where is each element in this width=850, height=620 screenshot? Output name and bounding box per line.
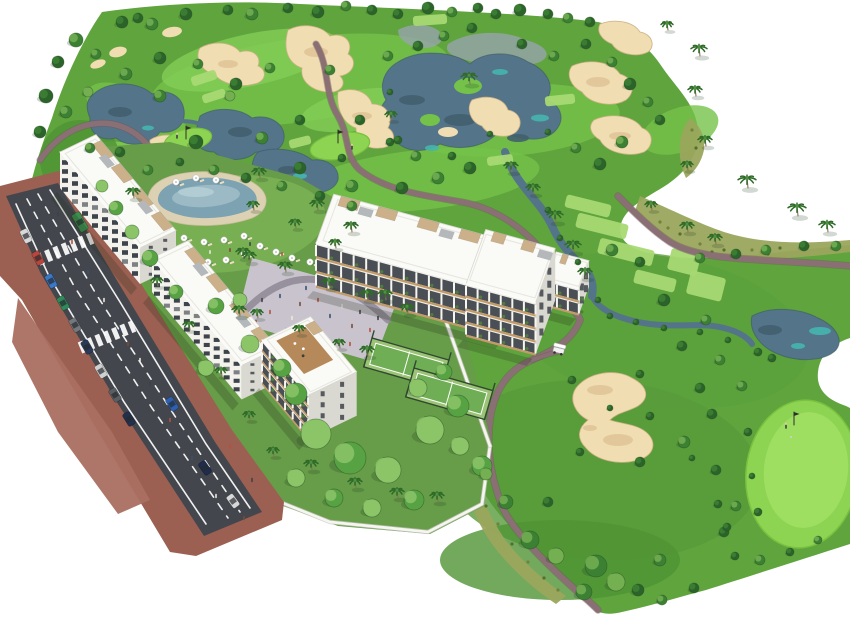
palm-shadow	[702, 146, 715, 150]
tree-highlight	[731, 552, 736, 557]
tree-highlight	[473, 3, 479, 9]
terrace-column	[511, 338, 513, 348]
tree-highlight	[661, 325, 665, 329]
rendering-canvas	[0, 0, 850, 620]
tree-highlight	[678, 436, 685, 443]
palm-crown	[294, 220, 297, 223]
palm-crown	[686, 162, 689, 165]
pool-guest	[209, 250, 211, 254]
palm-crown	[406, 305, 409, 308]
palm-shadow	[742, 187, 758, 193]
terrace-plant	[355, 263, 358, 266]
palm-shadow	[685, 170, 696, 174]
tree-highlight	[347, 201, 353, 207]
terrace-plant	[455, 305, 458, 308]
terrace-column	[534, 318, 536, 328]
tree-highlight	[480, 468, 487, 475]
tree-highlight	[543, 497, 549, 503]
tree-highlight	[39, 90, 48, 99]
terrace-column	[269, 384, 271, 392]
palm-shadow	[434, 502, 447, 506]
tree-highlight	[393, 9, 399, 15]
tree-highlight	[109, 202, 118, 211]
palm-crown	[686, 223, 689, 226]
palm-crown	[366, 347, 369, 350]
tree-highlight	[464, 162, 471, 169]
aerial-render	[0, 0, 850, 620]
tree-highlight	[447, 7, 453, 13]
palm-crown	[238, 307, 241, 310]
palm-crown	[704, 137, 707, 140]
terrace-column	[534, 344, 536, 354]
palm-shadow	[551, 221, 565, 226]
plaza-person	[349, 342, 351, 346]
terrace-column	[378, 262, 380, 273]
palm-crown	[272, 448, 275, 451]
terrace-column	[500, 308, 502, 318]
tree-highlight	[367, 5, 373, 11]
pedestrian	[191, 456, 193, 460]
tree-highlight	[563, 13, 569, 19]
terrace-column	[440, 308, 442, 319]
palm-shadow	[271, 456, 282, 460]
plaza-person	[329, 314, 331, 318]
terrace-column	[353, 270, 355, 281]
palm-crown	[826, 222, 829, 225]
terrace-column	[465, 299, 467, 309]
tree-highlight	[549, 51, 555, 57]
palm-shadow	[684, 232, 697, 236]
umbrella-pole	[183, 237, 185, 239]
window	[132, 262, 138, 267]
window	[82, 202, 88, 207]
bunker-shade	[587, 385, 613, 395]
terrace-column	[328, 248, 330, 259]
tree-highlight	[472, 457, 484, 469]
palm-crown	[252, 202, 255, 205]
tree-highlight	[91, 49, 97, 55]
tree-highlight	[543, 9, 549, 15]
terrace-column	[578, 291, 580, 301]
side-window	[584, 285, 588, 292]
tree-highlight	[409, 380, 420, 391]
bunker-shade	[218, 60, 238, 68]
terrace-column	[523, 315, 525, 325]
tree-highlight	[116, 16, 123, 23]
tree-highlight	[225, 91, 231, 97]
palm-crown	[256, 310, 259, 313]
tree-highlight	[657, 595, 663, 601]
palm-crown	[354, 479, 357, 482]
palm-shadow	[247, 420, 258, 424]
terrace-plant	[502, 315, 505, 318]
palm-shadow	[187, 330, 198, 334]
terrace-column	[511, 312, 513, 322]
pedestrian	[71, 240, 73, 244]
terrace-column	[488, 331, 490, 341]
terrace-column	[465, 312, 467, 322]
tree-highlight	[585, 556, 599, 570]
terrace-column	[415, 302, 417, 313]
tree-highlight	[295, 115, 301, 121]
scrub-band	[634, 196, 850, 259]
palm-shadow	[382, 300, 395, 304]
tree-highlight	[246, 8, 253, 15]
scrub-dot	[542, 576, 545, 579]
palm-crown	[396, 489, 399, 492]
window	[112, 247, 118, 252]
side-window	[250, 372, 254, 375]
tree-highlight	[677, 341, 683, 347]
palm-crown	[366, 291, 369, 294]
tree-highlight	[283, 3, 289, 9]
tree-highlight	[439, 31, 445, 37]
terrace-column	[556, 285, 558, 295]
tree-highlight	[754, 348, 759, 353]
tree-highlight	[517, 39, 523, 45]
tree-highlight	[312, 6, 319, 13]
window	[194, 339, 200, 343]
tree-highlight	[643, 97, 649, 103]
palm-shadow	[465, 83, 479, 88]
terrace-column	[261, 353, 263, 361]
tree-highlight	[256, 132, 263, 139]
terrace-column	[269, 373, 271, 381]
golfer	[785, 425, 787, 429]
palm-crown	[242, 249, 245, 252]
palm-crown	[334, 240, 337, 243]
terrace-column	[523, 328, 525, 338]
terrace-plant	[430, 298, 433, 301]
terrace-plant	[525, 308, 528, 311]
terrace-column	[284, 403, 286, 411]
palm-shadow	[251, 210, 262, 214]
terrace-column	[276, 393, 278, 401]
side-window	[321, 391, 325, 396]
scrub-dot	[484, 504, 487, 507]
tree-highlight	[499, 496, 508, 505]
lake-shallow	[142, 126, 154, 131]
palm-crown	[666, 22, 669, 25]
lake-shallow	[809, 327, 831, 335]
window	[92, 205, 98, 210]
tree-highlight	[545, 207, 549, 211]
tree-highlight	[241, 173, 247, 179]
lake-shallow	[425, 145, 439, 151]
tree-highlight	[697, 329, 701, 333]
tree-highlight	[334, 443, 354, 463]
terrace-plant	[380, 270, 383, 273]
window	[112, 238, 118, 243]
scrub-dot	[678, 232, 681, 235]
pedestrian	[139, 358, 141, 362]
lake-deep	[758, 325, 782, 335]
plaza-person	[269, 310, 271, 314]
tree-highlight	[607, 574, 618, 585]
tree-highlight	[755, 555, 761, 561]
terrace-column	[465, 325, 467, 335]
tree-highlight	[287, 470, 298, 481]
tree-highlight	[521, 532, 532, 543]
tree-highlight	[208, 299, 218, 309]
tree-highlight	[346, 180, 353, 187]
pedestrian	[149, 382, 151, 386]
window	[234, 370, 240, 374]
terrace-plant	[286, 407, 289, 410]
terrace-column	[440, 279, 442, 290]
pedestrian	[169, 418, 171, 422]
palm-shadow	[348, 232, 361, 236]
palm-shadow	[823, 231, 837, 236]
tree-highlight	[616, 136, 623, 143]
lake-deep	[399, 95, 425, 105]
side-window	[250, 389, 254, 392]
terrace-plant	[405, 277, 408, 280]
palm-shadow	[337, 348, 348, 352]
terrace-column	[567, 288, 569, 298]
tree-highlight	[146, 18, 153, 25]
golfer-head	[176, 133, 178, 135]
palm-shadow	[695, 55, 709, 60]
terrace-column	[428, 305, 430, 316]
tree-highlight	[265, 63, 271, 69]
tree-highlight	[581, 39, 587, 45]
window	[122, 259, 128, 264]
tree-highlight	[633, 319, 637, 323]
tree-highlight	[404, 491, 416, 503]
tree-highlight	[654, 554, 661, 561]
lake-deep	[108, 107, 132, 117]
tree-highlight	[60, 106, 67, 113]
tree-highlight	[714, 500, 719, 505]
tree-highlight	[52, 56, 59, 63]
tree-highlight	[737, 381, 743, 387]
tree-highlight	[193, 59, 199, 65]
side-window	[539, 316, 543, 323]
window	[234, 379, 240, 383]
deck-furniture	[302, 347, 305, 350]
scrub-dot	[778, 246, 781, 249]
palm-crown	[350, 223, 353, 226]
palm-crown	[156, 278, 159, 281]
tree-highlight	[632, 584, 639, 591]
palm-shadow	[712, 244, 725, 248]
plaza-person	[291, 316, 293, 320]
tree-highlight	[689, 455, 693, 459]
umbrella-pole	[275, 251, 277, 253]
umbrella-pole	[225, 259, 227, 261]
tree-highlight	[341, 1, 347, 7]
window	[102, 217, 108, 222]
golfer-head	[785, 423, 787, 425]
tree-highlight	[467, 23, 473, 29]
pedestrian	[243, 516, 245, 520]
bunker-shade	[586, 77, 610, 87]
tree-highlight	[701, 315, 707, 321]
palm-shadow	[530, 194, 543, 198]
umbrella-pole	[195, 177, 197, 179]
terrace-column	[477, 328, 479, 338]
tree-highlight	[180, 8, 187, 15]
tree-highlight	[754, 508, 759, 513]
terrace-column	[500, 321, 502, 331]
side-window	[340, 404, 344, 409]
tree-highlight	[814, 536, 819, 541]
terrace-plant	[430, 313, 433, 316]
palm-crown	[248, 253, 251, 256]
palm-shadow	[364, 300, 377, 304]
side-window	[340, 415, 344, 420]
terrace-column	[465, 286, 467, 296]
tree-highlight	[768, 354, 773, 359]
side-window	[321, 413, 325, 418]
terrace-column	[453, 297, 455, 308]
terrace-column	[523, 341, 525, 351]
tree-highlight	[635, 457, 641, 463]
window	[132, 253, 138, 258]
palm-shadow	[282, 272, 295, 276]
palm-crown	[248, 412, 251, 415]
terrace-column	[340, 252, 342, 263]
tree-highlight	[731, 249, 737, 255]
tree-highlight	[595, 297, 599, 301]
terrace-column	[340, 281, 342, 292]
window	[82, 193, 88, 198]
tree-highlight	[448, 152, 453, 157]
terrace-column	[269, 351, 271, 359]
terrace-column	[511, 325, 513, 335]
side-window	[163, 239, 167, 242]
tree-highlight	[142, 251, 152, 261]
terrace-column	[534, 331, 536, 341]
terrace-column	[477, 315, 479, 325]
terrace-plant	[271, 356, 274, 359]
tree-highlight	[396, 182, 403, 189]
terrace-column	[353, 255, 355, 266]
window	[92, 214, 98, 219]
side-window	[321, 402, 325, 407]
window	[72, 181, 78, 186]
side-window	[340, 393, 344, 398]
terrace-plant	[405, 292, 408, 295]
palm-crown	[650, 202, 653, 205]
deck-furniture	[302, 354, 305, 357]
terrace-column	[415, 287, 417, 298]
tree-highlight	[575, 259, 579, 263]
terrace-column	[340, 266, 342, 277]
tree-highlight	[154, 52, 161, 59]
tree-highlight	[386, 138, 391, 143]
terrace-column	[488, 305, 490, 315]
umbrella-pole	[223, 239, 225, 241]
tree-highlight	[387, 89, 391, 93]
terrace-column	[292, 412, 294, 420]
palm-crown	[328, 279, 331, 282]
terrace-plant	[455, 291, 458, 294]
window	[82, 211, 88, 216]
pool-guest	[281, 252, 283, 256]
terrace-plant	[502, 328, 505, 331]
tree-highlight	[432, 172, 439, 179]
palm-crown	[468, 74, 471, 77]
tree-highlight	[209, 165, 215, 171]
palm-shadow	[665, 30, 676, 34]
terrace-column	[276, 382, 278, 390]
terrace-column	[307, 397, 309, 405]
plaza-person	[299, 302, 301, 306]
tree-highlight	[120, 68, 127, 75]
palm-crown	[532, 185, 535, 188]
tree-highlight	[594, 158, 601, 165]
terrace-column	[453, 282, 455, 293]
tree-highlight	[375, 458, 391, 474]
umbrella-pole	[259, 245, 261, 247]
palm-shadow	[255, 318, 266, 322]
palm-shadow	[649, 210, 660, 214]
terrace-column	[315, 245, 317, 256]
terrace-column	[365, 273, 367, 284]
tree-highlight	[568, 376, 573, 381]
window	[102, 235, 108, 240]
palm-shadow	[256, 178, 269, 182]
golf-ball	[790, 436, 792, 438]
terrace-plant	[580, 297, 583, 300]
scrub-dot	[698, 242, 701, 245]
tree-highlight	[96, 180, 103, 187]
terrace-column	[269, 362, 271, 370]
terrace-plant	[525, 321, 528, 324]
terrace-column	[500, 334, 502, 344]
terrace-column	[428, 290, 430, 301]
tree-highlight	[725, 337, 729, 341]
window	[62, 169, 68, 174]
window	[154, 292, 160, 296]
lake-shallow	[791, 343, 805, 349]
terrace-column	[284, 381, 286, 389]
umbrella-pole	[215, 179, 217, 181]
palm-shadow	[404, 314, 417, 318]
scrub-dot	[722, 248, 725, 251]
terrace-plant	[525, 334, 528, 337]
pedestrian	[57, 212, 59, 216]
tree-highlight	[383, 51, 389, 57]
window	[122, 241, 128, 246]
tree-highlight	[447, 396, 461, 410]
tree-highlight	[315, 191, 321, 197]
tree-highlight	[241, 336, 252, 347]
terrace-column	[500, 295, 502, 305]
palm-crown	[554, 212, 557, 215]
tree-highlight	[689, 583, 695, 589]
tree-highlight	[606, 244, 613, 251]
umbrella-pole	[243, 235, 245, 237]
tree-highlight	[189, 136, 198, 145]
tree-highlight	[607, 313, 611, 317]
tree-highlight	[715, 355, 721, 361]
tree-highlight	[83, 87, 89, 93]
terrace-column	[315, 260, 317, 271]
window	[122, 250, 128, 255]
terrace-plant	[380, 285, 383, 288]
tree-highlight	[731, 501, 737, 507]
palm-shadow	[352, 488, 365, 492]
window	[214, 346, 220, 350]
palm-crown	[436, 493, 439, 496]
tree-highlight	[338, 154, 343, 159]
pool-sparkle	[178, 187, 214, 197]
tree-highlight	[285, 384, 299, 398]
terrace-column	[428, 276, 430, 287]
